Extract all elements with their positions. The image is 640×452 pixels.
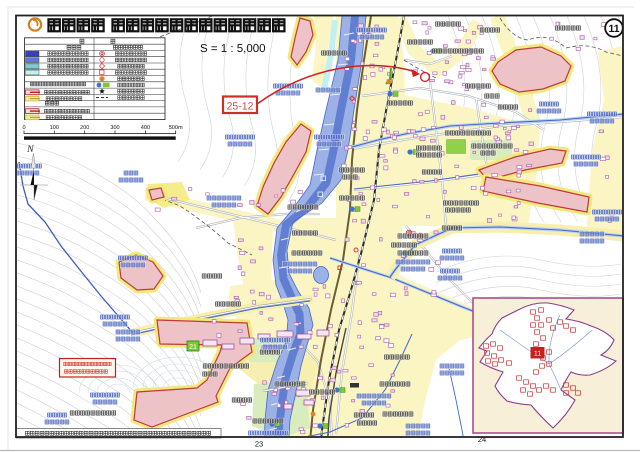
svg-text:11: 11: [534, 351, 541, 358]
svg-text:21: 21: [189, 344, 197, 351]
svg-text:0: 0: [22, 125, 25, 131]
svg-text:100: 100: [50, 125, 59, 131]
svg-text:200: 200: [80, 125, 89, 131]
svg-text:300: 300: [110, 125, 119, 131]
svg-text:25-12: 25-12: [227, 101, 254, 113]
svg-text:400: 400: [141, 125, 150, 131]
svg-text:11: 11: [608, 23, 619, 35]
svg-text:23: 23: [255, 440, 263, 449]
svg-text:S = 1 : 5,000: S = 1 : 5,000: [200, 43, 266, 55]
svg-text:500m: 500m: [169, 125, 183, 131]
